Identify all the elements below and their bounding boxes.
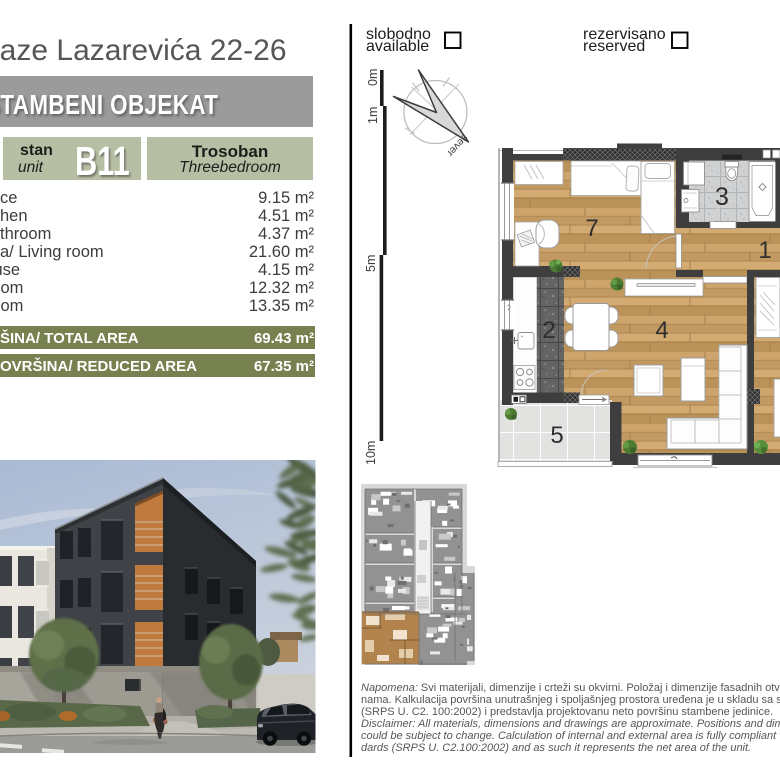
svg-text:1: 1 [758, 237, 771, 264]
svg-text:4: 4 [655, 317, 668, 344]
svg-text:7: 7 [585, 215, 598, 242]
svg-text:1m: 1m [366, 107, 380, 124]
svg-text:0m: 0m [366, 69, 380, 86]
svg-text:2: 2 [542, 317, 555, 344]
svg-text:10m: 10m [364, 441, 378, 465]
svg-text:5m: 5m [364, 255, 378, 272]
svg-text:5: 5 [550, 422, 563, 449]
svg-text:3: 3 [715, 183, 729, 211]
